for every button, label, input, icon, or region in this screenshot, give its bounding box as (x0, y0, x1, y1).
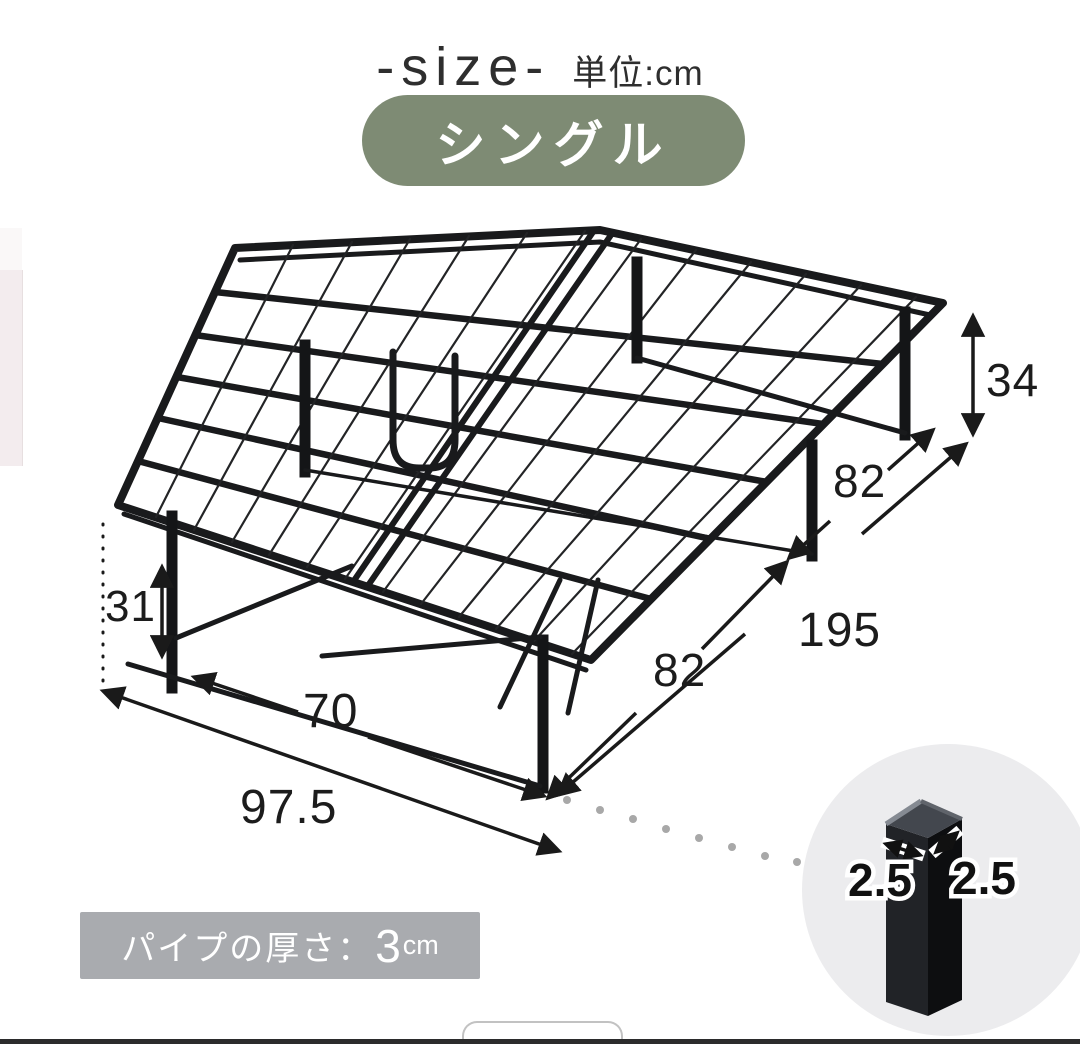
product-size-diagram: -size- 単位:cm シングル (0, 0, 1080, 1044)
leg-depth-value: 2.5 (952, 852, 1016, 904)
pipe-thickness-label: パイプの厚さ： (121, 921, 373, 970)
leg-span-rear-value: 82 (833, 455, 886, 507)
head-brace (176, 566, 352, 638)
pipe-thickness-value: 3 (375, 919, 401, 973)
near-rail-tube-accent (124, 514, 586, 670)
pipe-thickness-note: パイプの厚さ： 3 cm (80, 912, 480, 979)
lower-fold-rail (322, 637, 540, 656)
leg-span-front-value: 82 (653, 644, 706, 696)
dimension-inner-width: 70 (194, 677, 544, 796)
total-width-value: 97.5 (240, 781, 337, 834)
dimension-frame-length: 195 (558, 444, 966, 795)
frame-length-value: 195 (798, 604, 881, 657)
leg-width-value: 2.5 (848, 854, 912, 906)
pipe-thickness-unit: cm (403, 930, 439, 961)
total-height-value: 34 (986, 354, 1039, 406)
leg-cross-section-inset: 2.5 2.5 (802, 744, 1080, 1036)
dimension-total-height: 34 (973, 316, 1039, 434)
magnifier-leader-dots (563, 796, 801, 866)
leg-height-value: 31 (105, 582, 156, 631)
dimension-leg-height: 31 (105, 567, 162, 656)
bed-frame-diagram: 34 195 82 82 (0, 0, 1080, 1044)
inner-width-value: 70 (303, 685, 358, 738)
bed-frame-drawing (118, 230, 943, 788)
dimension-leg-span-front: 82 (548, 562, 787, 798)
bottom-edge-bar (0, 1039, 1080, 1044)
